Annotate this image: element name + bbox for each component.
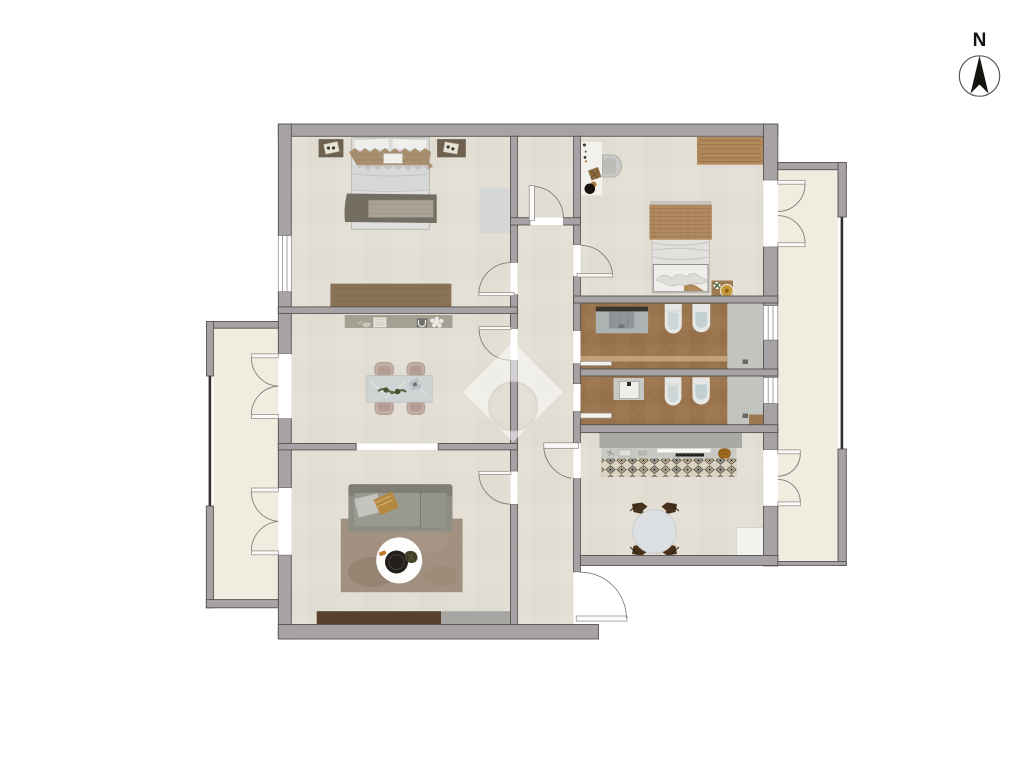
svg-text:N: N xyxy=(973,30,987,51)
